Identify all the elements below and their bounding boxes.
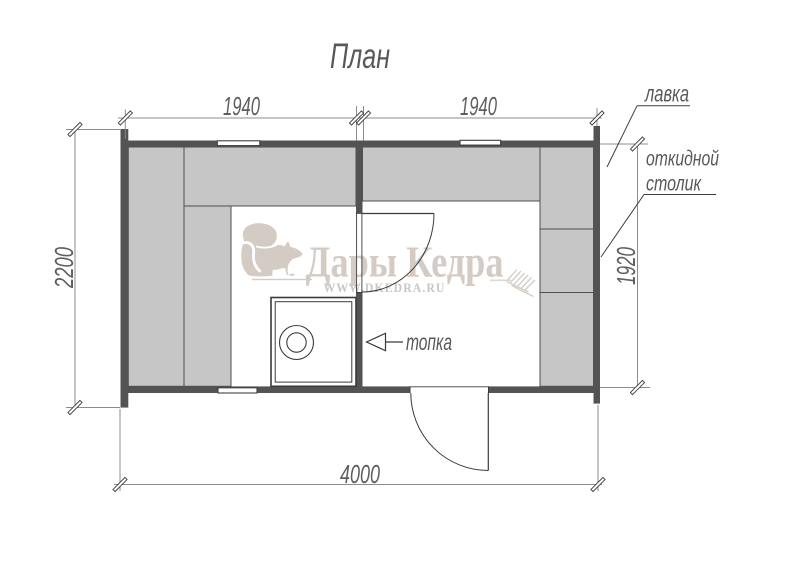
svg-text:откидной: откидной [646, 148, 719, 171]
svg-text:Дары Кедра: Дары Кедра [306, 237, 504, 286]
svg-text:WWW.DKEDRA.RU: WWW.DKEDRA.RU [324, 280, 446, 295]
svg-text:лавка: лавка [644, 81, 689, 107]
svg-text:4000: 4000 [340, 459, 380, 489]
svg-text:1940: 1940 [223, 91, 260, 121]
svg-text:столик: столик [646, 173, 702, 196]
svg-text:1940: 1940 [460, 91, 497, 121]
svg-text:1920: 1920 [611, 247, 641, 285]
svg-text:План: План [330, 37, 390, 76]
svg-text:топка: топка [406, 329, 452, 355]
svg-text:2200: 2200 [49, 247, 79, 289]
